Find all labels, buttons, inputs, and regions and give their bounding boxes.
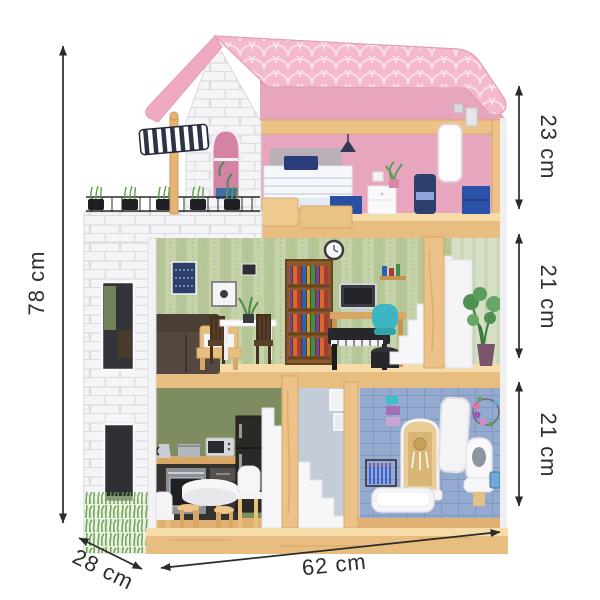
wall-clock: [325, 241, 343, 259]
computer-monitor: [340, 284, 376, 312]
dimension-label-width: 62 cm: [301, 549, 368, 581]
dimension-label-total-height: 78 cm: [24, 251, 49, 316]
dimension-label-ground-floor: 21 cm: [536, 413, 561, 478]
frame-post-right: [344, 382, 358, 528]
towel-lilac: [386, 417, 400, 426]
front-frame-left-edge: [148, 238, 156, 532]
bathroom-mirror-panel: [438, 397, 470, 472]
soap-dispenser: [490, 472, 500, 488]
balcony-parapet: [84, 212, 262, 242]
stair-side-panel: [446, 260, 472, 368]
dollhouse: [84, 36, 508, 554]
product-dimension-diagram: 78 cm 23 cm 21 cm 21 cm 62 cm 28 cm: [0, 0, 600, 600]
frame-post-left: [282, 376, 298, 528]
dimension-ground-floor: 21 cm: [519, 382, 561, 506]
shower-caddy: [386, 396, 398, 404]
bedroom-armchair: [414, 174, 436, 214]
living-room: [150, 237, 505, 390]
gable-arch-window: [212, 130, 240, 199]
dimension-label-top-floor: 23 cm: [536, 115, 561, 180]
front-frame-right-edge: [500, 118, 507, 528]
bedroom-side-window: [438, 124, 462, 182]
cooking-pot: [176, 444, 202, 457]
striped-awning: [139, 124, 209, 155]
dollhouse-illustration: 78 cm 23 cm 21 cm 21 cm 62 cm 28 cm: [0, 0, 600, 600]
side-tower-wall: [84, 222, 150, 553]
table-lamp: [373, 172, 383, 181]
tower-window-middle: [102, 282, 134, 370]
ground-floor: [150, 376, 505, 534]
dimension-top-floor: 23 cm: [519, 86, 561, 209]
tower-window-bottom: [104, 424, 134, 502]
microwave: [206, 438, 234, 456]
towel-purple: [386, 406, 400, 415]
dimension-label-middle-floor: 21 cm: [536, 265, 561, 330]
bed-pillow: [284, 156, 318, 170]
dimension-total-height: 78 cm: [24, 46, 63, 523]
stair-post: [424, 237, 444, 368]
bookshelf: [286, 260, 332, 364]
dimension-middle-floor: 21 cm: [519, 234, 561, 358]
